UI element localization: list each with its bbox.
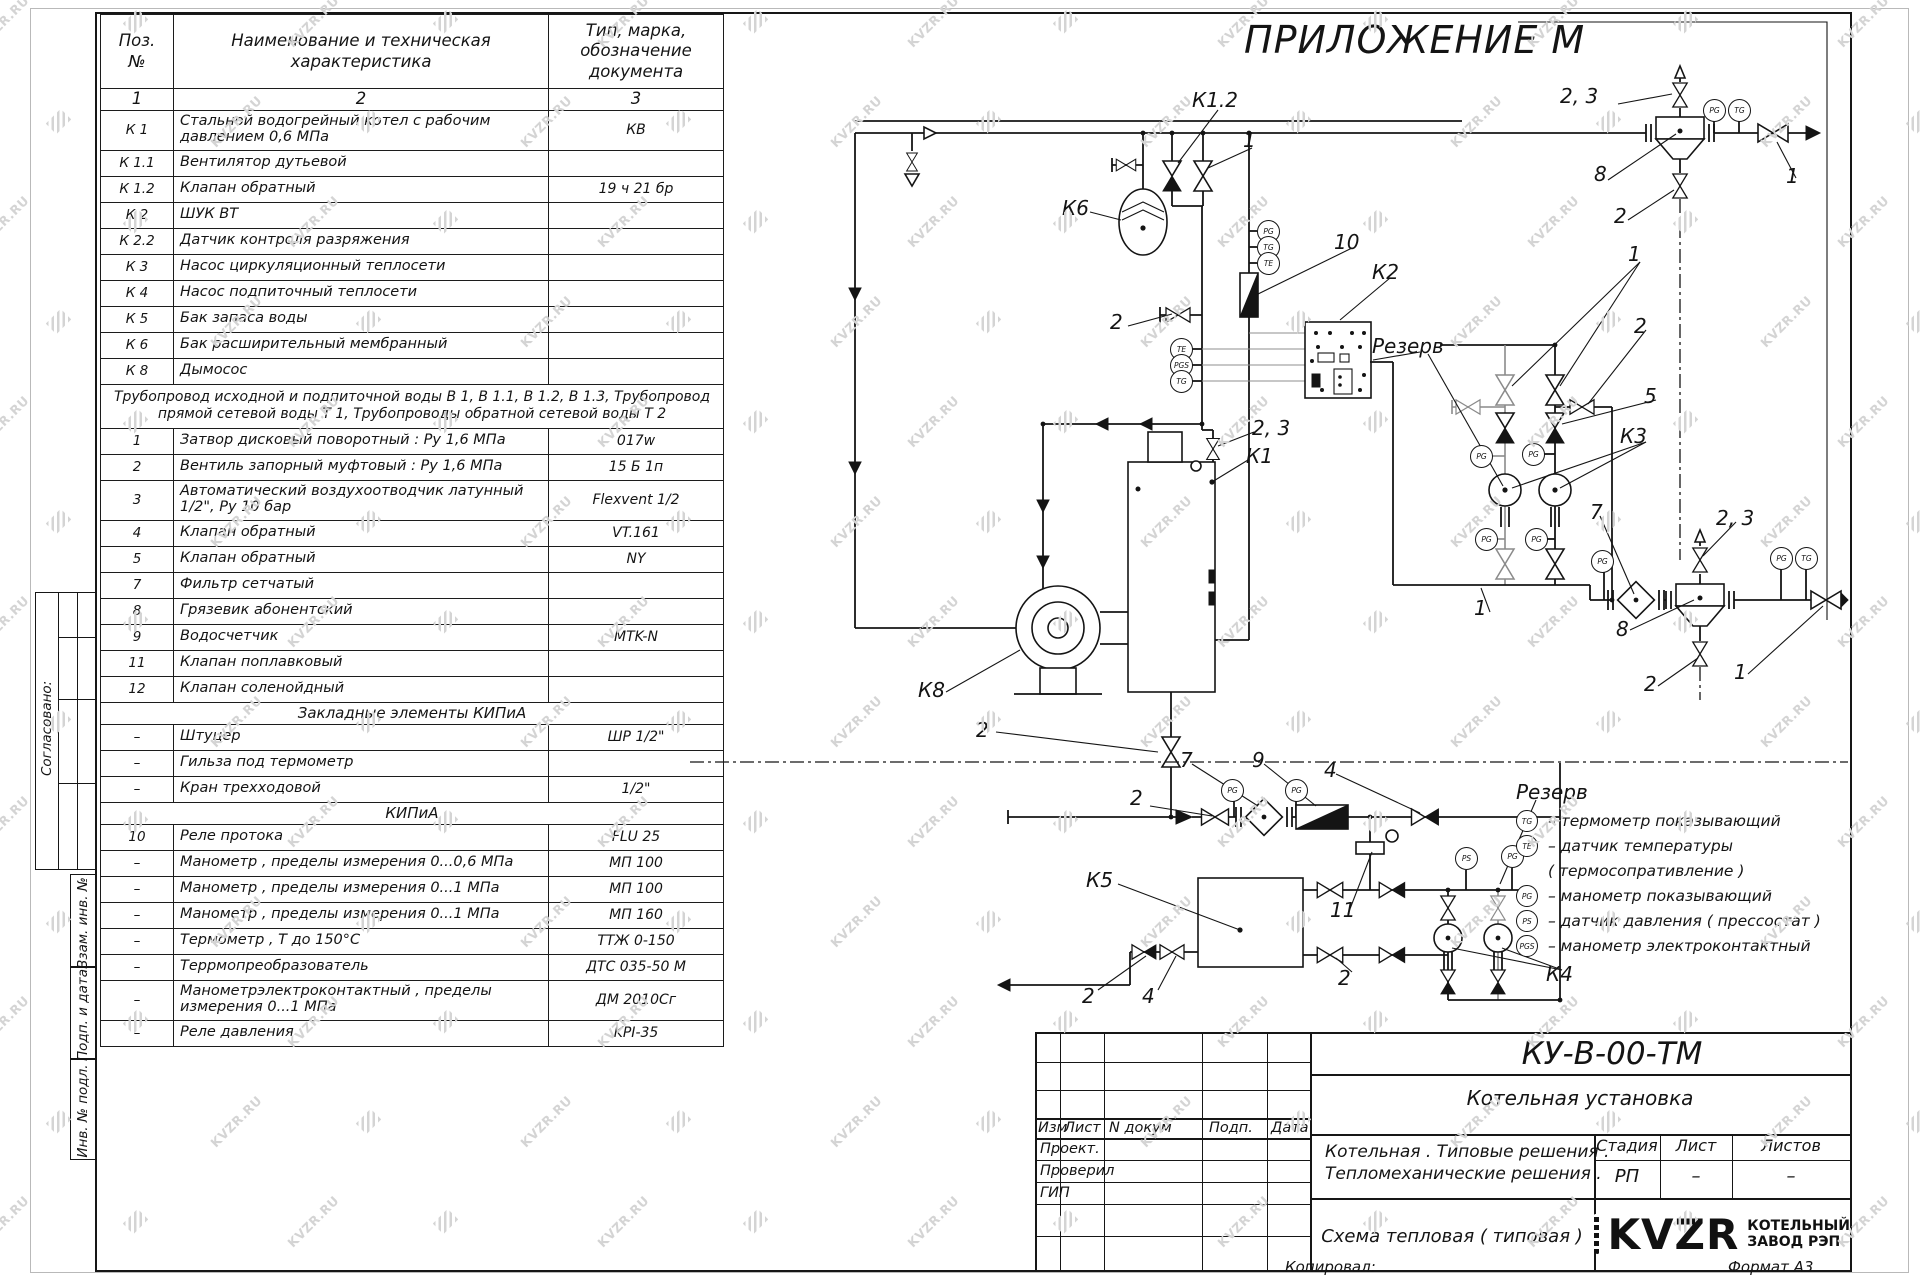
pos-cell: К 2.2 [101,228,174,254]
type-cell: 19 ч 21 бр [549,176,724,202]
format-label: Формат А3 [1728,1258,1813,1276]
pos-cell: 1 [101,428,174,454]
pos-cell: К 4 [101,280,174,306]
name-cell: Клапан поплавковый [174,650,549,676]
table-row: 5Клапан обратныйNY [101,546,724,572]
name-cell: Вентиль запорный муфтовый : Ру 1,6 МПа [174,454,549,480]
inv-box: Инв. № подл. [70,1058,97,1160]
name-cell: Клапан обратный [174,520,549,546]
legend-item: TE– датчик температуры [1516,835,1821,857]
pos-cell: – [101,724,174,750]
instrument-tg-icon: TG [1170,370,1193,393]
legend-item: PG– манометр показывающий [1516,885,1821,907]
stage-label: Стадия [1594,1136,1660,1155]
legend-item: PS– датчик давления ( прессостат ) [1516,910,1821,932]
pos-cell: 8 [101,598,174,624]
name-cell: Дымосос [174,358,549,384]
spec-col-name: Наименование и техническая характеристик… [174,15,549,89]
name-cell: Кран трехходовой [174,776,549,802]
table-row: –Термометр , Т до 150°СТТЖ 0-150 [101,928,724,954]
spec-col-pos: Поз. № [101,15,174,89]
instrument-tg-icon: TG [1728,99,1751,122]
kvzr-logo-text: KVZR [1607,1210,1739,1259]
note-row: Трубопровод исходной и подпиточной воды … [101,384,724,428]
callout-label: 9 [1252,748,1265,772]
instrument-pg-icon: PG [1522,443,1545,466]
legend-item: ( термосопративление ) [1516,860,1821,882]
type-cell: VT.161 [549,520,724,546]
name-cell: Реле давления [174,1020,549,1046]
pos-cell: – [101,750,174,776]
callout-label: Резерв [1372,334,1444,358]
callout-label: 7 [1180,748,1193,772]
pos-cell: К 8 [101,358,174,384]
pos-cell: 9 [101,624,174,650]
name-cell: Датчик контроля разряжения [174,228,549,254]
table-row: К 2.2Датчик контроля разряжения [101,228,724,254]
name-cell: Водосчетчик [174,624,549,650]
drawing-sheet: { "appendix_title": "ПРИЛОЖЕНИЕ М", "wat… [0,0,1920,1280]
callout-label: 4 [1324,758,1337,782]
callout-label: 2, 3 [1716,506,1754,530]
spec-index-1: 1 [101,89,174,111]
type-cell: Flexvent 1/2 [549,480,724,520]
name-cell: Манометрэлектроконтактный , пределы изме… [174,980,549,1020]
instrument-tg-icon: TG [1795,547,1818,570]
callout-label: 5 [1644,384,1657,408]
callout-label: 7 [1590,500,1603,524]
kvzr-logo-icon [1594,1214,1599,1254]
legend-ps-icon: PS [1516,910,1538,932]
type-cell: 1/2" [549,776,724,802]
company-line-1: КОТЕЛЬНЫЙ [1747,1218,1850,1234]
type-cell: МП 100 [549,850,724,876]
callout-label: К3 [1620,424,1647,448]
pos-cell: – [101,902,174,928]
table-row: –ТеррмопреобразовательДТС 035-50 М [101,954,724,980]
callout-label: К5 [1086,868,1113,892]
table-row: К 6Бак расширительный мембранный [101,332,724,358]
name-cell: Грязевик абонентский [174,598,549,624]
type-cell [549,750,724,776]
legend-text: – датчик температуры [1548,837,1733,855]
role-project: Проект. [1040,1141,1100,1157]
instrument-pg-icon: PG [1221,779,1244,802]
callout-label: Резерв [1516,780,1588,804]
pos-cell: 4 [101,520,174,546]
spec-table-body: К 1Стальной водогрейный котел с рабочим … [101,110,724,1046]
pos-cell: – [101,928,174,954]
table-row: 9ВодосчетчикMTK-N [101,624,724,650]
col-list: Лист [1064,1120,1101,1136]
pos-cell: – [101,954,174,980]
legend-text: – манометр электроконтактный [1548,937,1811,955]
pos-cell: – [101,876,174,902]
table-row: К 3Насос циркуляционный теплосети [101,254,724,280]
table-row: К 2ШУК ВТ [101,202,724,228]
table-row: 10Реле протокаFLU 25 [101,824,724,850]
table-row: 11Клапан поплавковый [101,650,724,676]
callout-label: 1 [1474,596,1487,620]
callout-label: 8 [1594,162,1607,186]
callout-label: 10 [1334,230,1359,254]
inv-label: Инв. № подл. [75,1061,91,1161]
pos-cell: 11 [101,650,174,676]
type-cell: ШР 1/2" [549,724,724,750]
table-row: –Кран трехходовой1/2" [101,776,724,802]
instrument-pg-icon: PG [1525,528,1548,551]
pos-cell: – [101,1020,174,1046]
legend-pg-icon: PG [1516,885,1538,907]
type-cell [549,254,724,280]
callout-label: К1 [1246,444,1273,468]
callout-label: 2, 3 [1252,416,1290,440]
name-cell: ШУК ВТ [174,202,549,228]
callout-label: 2, 3 [1560,84,1598,108]
instrument-ps-icon: PS [1455,847,1478,870]
name-cell: Клапан обратный [174,176,549,202]
pos-cell: К 1 [101,110,174,150]
table-row: К 1.1Вентилятор дутьевой [101,150,724,176]
type-cell: NY [549,546,724,572]
name-cell: Насос циркуляционный теплосети [174,254,549,280]
callout-label: К4 [1546,962,1573,986]
instrument-pg-icon: PG [1475,528,1498,551]
pos-cell: 2 [101,454,174,480]
pos-cell: К 1.2 [101,176,174,202]
section-title: Закладные элементы КИПиА [101,702,724,724]
type-cell: MTK-N [549,624,724,650]
legend-pgs-icon: PGS [1516,935,1538,957]
callout-label: 1 [1628,242,1641,266]
appendix-title: ПРИЛОЖЕНИЕ М [1244,18,1585,62]
title-block: Изм Лист N докум Подп. Дата Проект. Пров… [1035,1032,1852,1272]
object-name: Котельная установка [1310,1086,1850,1110]
name-cell: Гильза под термометр [174,750,549,776]
type-cell: МП 100 [549,876,724,902]
pos-cell: 10 [101,824,174,850]
type-cell: FLU 25 [549,824,724,850]
legend: TG– термометр показывающийTE– датчик тем… [1516,810,1821,957]
name-cell: Манометр , пределы измерения 0...1 МПа [174,876,549,902]
callout-label: 1 [1786,164,1799,188]
specification-table: Поз. № Наименование и техническая характ… [100,14,724,1047]
name-cell: Штуцер [174,724,549,750]
pos-cell: – [101,980,174,1020]
approved-label: Согласовано: [39,686,55,776]
table-row: 2Вентиль запорный муфтовый : Ру 1,6 МПа1… [101,454,724,480]
type-cell: КВ [549,110,724,150]
pipeline-note: Трубопровод исходной и подпиточной воды … [101,384,724,428]
table-row: –ШтуцерШР 1/2" [101,724,724,750]
pos-cell: К 6 [101,332,174,358]
pos-cell: К 2 [101,202,174,228]
callout-label: 2 [1634,314,1647,338]
type-cell [549,650,724,676]
copied-label: Копировал: [1285,1258,1376,1276]
callout-label: 1 [1243,128,1256,152]
callout-label: К1.2 [1192,88,1238,112]
name-cell: Вентилятор дутьевой [174,150,549,176]
callout-label: 2 [1614,204,1627,228]
company-name: КОТЕЛЬНЫЙ ЗАВОД РЭП [1747,1218,1850,1250]
table-row: –Манометр , пределы измерения 0...1 МПаМ… [101,902,724,928]
name-cell: Клапан соленойдный [174,676,549,702]
callout-label: 2 [1110,310,1123,334]
callout-label: 1 [1734,660,1747,684]
project-line-2: Тепломеханические решения . [1325,1164,1602,1184]
type-cell: ДТС 035-50 М [549,954,724,980]
table-row: К 1Стальной водогрейный котел с рабочим … [101,110,724,150]
name-cell: Террмопреобразователь [174,954,549,980]
type-cell: KPI-35 [549,1020,724,1046]
name-cell: Автоматический воздухоотводчик латунный … [174,480,549,520]
instrument-pg-icon: PG [1770,547,1793,570]
callout-label: 2 [1644,672,1657,696]
table-row: –Манометрэлектроконтактный , пределы изм… [101,980,724,1020]
table-row: 7Фильтр сетчатый [101,572,724,598]
table-row: 12Клапан соленойдный [101,676,724,702]
callout-label: 2 [1338,966,1351,990]
table-row: –Манометр , пределы измерения 0...1 МПаМ… [101,876,724,902]
type-cell: ДМ 2010Сг [549,980,724,1020]
name-cell: Бак запаса воды [174,306,549,332]
instrument-pg-icon: PG [1285,779,1308,802]
table-row: К 4Насос подпиточный теплосети [101,280,724,306]
table-row: К 1.2Клапан обратный19 ч 21 бр [101,176,724,202]
sheets-label: Листов [1732,1136,1850,1155]
type-cell: ТТЖ 0-150 [549,928,724,954]
type-cell [549,358,724,384]
table-row: –Гильза под термометр [101,750,724,776]
company-line-2: ЗАВОД РЭП [1747,1234,1850,1250]
name-cell: Термометр , Т до 150°С [174,928,549,954]
role-gip: ГИП [1040,1185,1070,1201]
pos-cell: 7 [101,572,174,598]
type-cell [549,332,724,358]
name-cell: Бак расширительный мембранный [174,332,549,358]
podp-label: Подп. и дата [75,965,91,1065]
table-row: –Реле давленияKPI-35 [101,1020,724,1046]
name-cell: Манометр , пределы измерения 0...0,6 МПа [174,850,549,876]
pos-cell: 12 [101,676,174,702]
instrument-te-icon: TE [1257,252,1280,275]
callout-label: 2 [1082,984,1095,1008]
type-cell [549,202,724,228]
callout-label: К8 [918,678,945,702]
callout-label: К2 [1372,260,1399,284]
type-cell [549,572,724,598]
drawing-name: Схема тепловая ( типовая ) [1310,1226,1594,1247]
pos-cell: – [101,850,174,876]
callout-label: 11 [1330,898,1355,922]
col-ndoc: N докум [1109,1120,1172,1136]
instrument-pg-icon: PG [1703,99,1726,122]
spec-col-type: Тип, марка, обозначение документа [549,15,724,89]
sheet-label: Лист [1660,1136,1732,1155]
approved-box: Согласовано: [35,592,97,870]
instrument-pg-icon: PG [1470,445,1493,468]
doc-number: КУ-В-00-ТМ [1377,1036,1847,1072]
pos-cell: 5 [101,546,174,572]
callout-label: 2 [976,718,989,742]
type-cell [549,150,724,176]
project-line-1: Котельная . Типовые решения . [1325,1142,1609,1162]
name-cell: Стальной водогрейный котел с рабочим дав… [174,110,549,150]
stage-value: РП [1594,1166,1660,1187]
legend-text: ( термосопративление ) [1548,862,1744,880]
name-cell: Фильтр сетчатый [174,572,549,598]
sheets-value: – [1732,1166,1850,1187]
callout-label: 8 [1616,617,1629,641]
name-cell: Манометр , пределы измерения 0...1 МПа [174,902,549,928]
spec-index-2: 2 [174,89,549,111]
legend-text: – датчик давления ( прессостат ) [1548,912,1821,930]
pos-cell: – [101,776,174,802]
instrument-pg-icon: PG [1591,550,1614,573]
podp-box: Подп. и дата [70,966,97,1060]
callout-label: 4 [1142,984,1155,1008]
type-cell [549,228,724,254]
table-row: 1Затвор дисковый поворотный : Ру 1,6 МПа… [101,428,724,454]
section-row: КИПиА [101,802,724,824]
type-cell: МП 160 [549,902,724,928]
col-podp: Подп. [1209,1120,1253,1136]
name-cell: Клапан обратный [174,546,549,572]
section-row: Закладные элементы КИПиА [101,702,724,724]
type-cell [549,676,724,702]
type-cell [549,280,724,306]
callout-label: 2 [1130,786,1143,810]
type-cell [549,306,724,332]
table-row: –Манометр , пределы измерения 0...0,6 МП… [101,850,724,876]
name-cell: Затвор дисковый поворотный : Ру 1,6 МПа [174,428,549,454]
sheet-value: – [1660,1166,1732,1187]
legend-item: PGS– манометр электроконтактный [1516,935,1821,957]
pos-cell: К 1.1 [101,150,174,176]
role-checked: Проверил [1040,1163,1114,1179]
pos-cell: 3 [101,480,174,520]
table-row: 8Грязевик абонентский [101,598,724,624]
table-row: 3Автоматический воздухоотводчик латунный… [101,480,724,520]
legend-tg-icon: TG [1516,810,1538,832]
spec-index-3: 3 [549,89,724,111]
callout-label: К6 [1062,196,1089,220]
type-cell: 15 Б 1п [549,454,724,480]
table-row: 4Клапан обратныйVT.161 [101,520,724,546]
legend-item: TG– термометр показывающий [1516,810,1821,832]
legend-te-icon: TE [1516,835,1538,857]
type-cell: 017w [549,428,724,454]
vzam-box: Взам. инв. № [70,874,97,968]
table-row: К 8Дымосос [101,358,724,384]
legend-text: – термометр показывающий [1548,812,1781,830]
pos-cell: К 3 [101,254,174,280]
legend-text: – манометр показывающий [1548,887,1772,905]
pos-cell: К 5 [101,306,174,332]
col-data: Дата [1271,1120,1309,1136]
vzam-label: Взам. инв. № [75,873,91,973]
section-title: КИПиА [101,802,724,824]
table-row: К 5Бак запаса воды [101,306,724,332]
name-cell: Реле протока [174,824,549,850]
type-cell [549,598,724,624]
name-cell: Насос подпиточный теплосети [174,280,549,306]
